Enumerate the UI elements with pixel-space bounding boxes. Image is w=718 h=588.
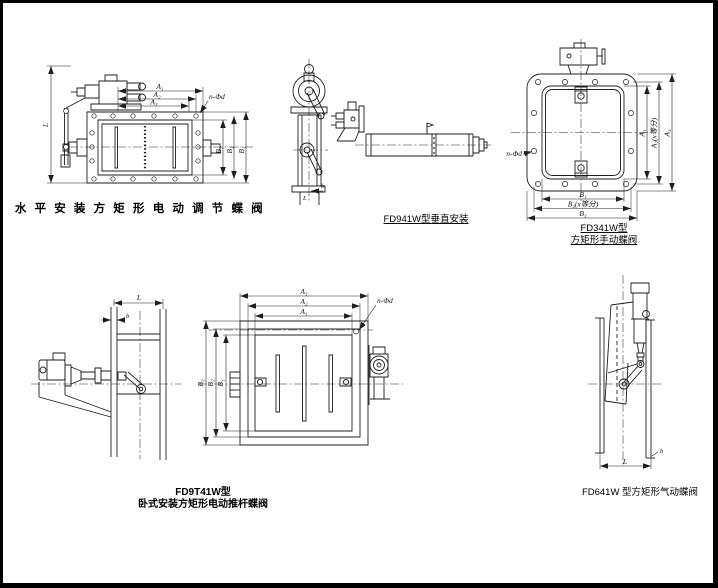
- dim-l: L: [622, 457, 627, 466]
- drawing-manual-valve: A₁ A₂(x等分) A₃ B₁ B₂(x等分) B₃ n-Φd FD341W型…: [506, 39, 676, 246]
- drawing-horizontal-electric-valve: A₁ A₂ A₃ n-Φd B₃ B₂ B₁ L 水 平 安 装 方 矩 形 电…: [15, 66, 265, 215]
- dim-l-small: L: [302, 195, 307, 202]
- dim-a2: A₂: [299, 297, 308, 306]
- crank-arm: [608, 364, 642, 389]
- dim-b1: B₁: [579, 190, 587, 199]
- pneumatic-cylinder: [631, 283, 650, 368]
- dim-b3: B₃: [196, 379, 205, 387]
- horizontal-tube-view: [331, 102, 491, 156]
- vertical-column-view: b L: [291, 59, 328, 205]
- dim-b1: B₁: [237, 146, 246, 154]
- side-actuator: [369, 345, 390, 405]
- dim-b3: B₃: [214, 146, 223, 154]
- drawing-pushrod-side-view: L b: [31, 293, 181, 460]
- dim-b3: B₃: [579, 209, 587, 218]
- valve-body-front-view: [61, 108, 253, 183]
- engineering-drawing-sheet: A₁ A₂ A₃ n-Φd B₃ B₂ B₁ L 水 平 安 装 方 矩 形 电…: [3, 3, 718, 588]
- dim-b-small: b: [321, 183, 325, 190]
- dim-b2: B₂: [206, 379, 215, 387]
- caption-pushrod-line2: 卧式安装方矩形电动推杆蝶阀: [138, 497, 268, 510]
- electric-actuator: [66, 75, 146, 110]
- dim-b: b: [126, 313, 130, 320]
- drawing-pushrod-front-view: A₃ A₂ A₁ n-Φd B₃ B₂ B₁ FD9T41W型 卧式安装方矩形电…: [138, 287, 403, 510]
- caption-manual-line2: 方矩形手动蝶阀: [571, 234, 638, 246]
- dim-a3: A₃: [299, 287, 308, 296]
- dim-l: L: [41, 123, 50, 128]
- valve-body: [605, 302, 633, 404]
- dimensions-bottom: B₁ B₂(x等分) B₃: [527, 179, 637, 221]
- caption-pneumatic: FD641W 型方矩形气动蝶阀: [582, 486, 698, 498]
- dimension-top: L b: [101, 293, 163, 320]
- dimensions-top: A₁ A₂ A₃ n-Φd: [118, 82, 225, 113]
- dim-b: b: [660, 448, 664, 455]
- caption-manual-line1: FD341W型: [581, 223, 628, 234]
- dim-a3: A₃: [149, 98, 158, 107]
- dim-bolt-spec: n-Φd: [506, 149, 522, 158]
- tube-actuator: [331, 102, 364, 141]
- dim-a1: A₁: [299, 307, 308, 316]
- page: A₁ A₂ A₃ n-Φd B₃ B₂ B₁ L 水 平 安 装 方 矩 形 电…: [0, 0, 718, 588]
- drawing-vertical-install: b L F: [291, 59, 491, 225]
- dim-b2: B₂: [225, 146, 234, 154]
- dimensions-left: B₃ B₂ B₁: [196, 321, 255, 445]
- dimensions-right: B₃ B₂ B₁: [192, 112, 249, 183]
- dimensions-top: A₃ A₂ A₁ n-Φd: [240, 287, 393, 335]
- drawing-pneumatic-valve: L b FD641W 型方矩形气动蝶阀: [582, 275, 698, 498]
- dim-b1: B₁: [216, 379, 225, 387]
- dimensions-bottom: L b: [600, 448, 664, 469]
- caption-vertical-install: FD941W型垂直安装: [384, 213, 469, 225]
- dim-l: L: [136, 293, 141, 302]
- dim-bolt-spec: n-Φd: [209, 92, 225, 101]
- dim-b2-div: B₂(x等分): [568, 200, 599, 209]
- dimension-left-L: L: [41, 66, 87, 183]
- caption-horizontal-electric: 水 平 安 装 方 矩 形 电 动 调 节 蝶 阀: [15, 201, 265, 215]
- dim-bolt-spec: n-Φd: [377, 296, 393, 305]
- dim-a1: A₁: [638, 129, 647, 138]
- dim-a3: A₃: [663, 129, 672, 138]
- gear-handwheel-actuator: [560, 43, 605, 74]
- caption-pushrod-line1: FD9T41W型: [175, 485, 231, 498]
- dim-a2-div: A₂(x等分): [650, 117, 659, 149]
- pushrod-actuator: [39, 353, 146, 417]
